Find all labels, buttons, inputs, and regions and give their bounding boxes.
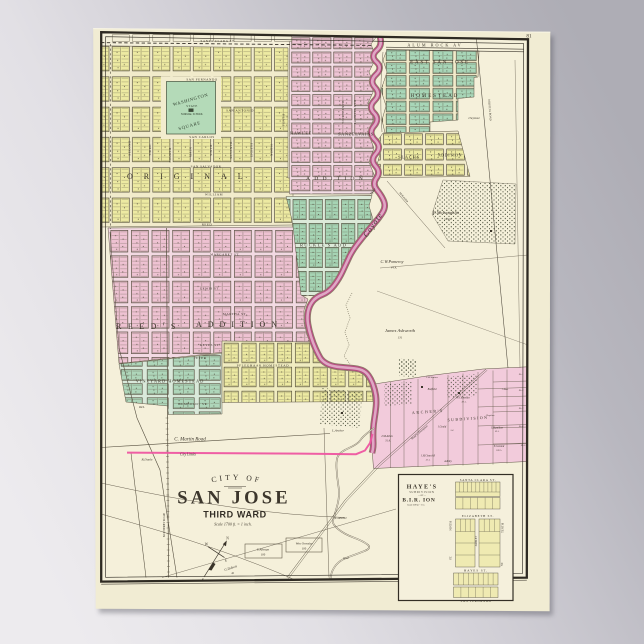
- svg-text:J.H.Churchill: J.H.Churchill: [421, 455, 435, 458]
- svg-text:F.Altman: F.Altman: [256, 548, 270, 552]
- svg-text:TENTH: TENTH: [282, 113, 286, 126]
- svg-text:L.Archer: L.Archer: [334, 516, 348, 520]
- svg-text:ELIZABETH ST.: ELIZABETH ST.: [462, 514, 494, 518]
- svg-text:109 A.: 109 A.: [496, 449, 502, 452]
- svg-text:E.McLaughlin: E.McLaughlin: [432, 210, 460, 215]
- svg-text:ADDITION: ADDITION: [438, 153, 462, 158]
- svg-text:RUCKLE'S ADD: RUCKLE'S ADD: [300, 243, 347, 248]
- svg-text:ST.: ST.: [500, 562, 504, 566]
- svg-text:No 4: No 4: [518, 425, 524, 428]
- svg-text:J.Seymour: J.Seymour: [468, 117, 481, 120]
- svg-text:WILLIAM: WILLIAM: [205, 193, 223, 197]
- svg-text:100: 100: [302, 547, 307, 551]
- svg-text:THIRD WARD: THIRD WARD: [203, 510, 267, 520]
- svg-text:ALUM ROCK AV: ALUM ROCK AV: [407, 43, 462, 48]
- svg-text:SANTA CLARA ST.: SANTA CLARA ST.: [200, 39, 235, 43]
- svg-text:HAYE'S: HAYE'S: [407, 484, 438, 491]
- svg-text:ADDITION: ADDITION: [306, 176, 367, 182]
- svg-text:39 A.: 39 A.: [461, 401, 466, 404]
- svg-text:R.Doyle: R.Doyle: [140, 458, 153, 462]
- svg-text:MARGARET ST.: MARGARET ST.: [210, 252, 240, 256]
- svg-text:No 1: No 1: [518, 373, 524, 376]
- svg-text:SAN ANTONIO: SAN ANTONIO: [226, 109, 254, 113]
- svg-text:LEWIS ST.: LEWIS ST.: [200, 287, 220, 291]
- svg-text:31 A.: 31 A.: [385, 440, 391, 443]
- svg-text:EIGHTH: EIGHTH: [249, 143, 253, 158]
- svg-text:Rich.: Rich.: [138, 406, 145, 409]
- svg-text:HOMESTEAD: HOMESTEAD: [411, 94, 460, 99]
- svg-text:SLACHS: SLACHS: [398, 155, 420, 160]
- svg-text:VINEYARD HOMESTEAD: VINEYARD HOMESTEAD: [136, 379, 205, 384]
- svg-text:SUBDIVISION: SUBDIVISION: [409, 491, 434, 494]
- svg-text:C.W.Pomeroy: C.W.Pomeroy: [381, 259, 404, 264]
- svg-text:MARTHA ST.: MARTHA ST.: [223, 312, 247, 316]
- svg-text:NINTH: NINTH: [449, 521, 453, 531]
- svg-text:REED: REED: [202, 223, 213, 227]
- svg-text:SECOND: SECOND: [128, 140, 132, 155]
- svg-text:A.Riley: A.Riley: [443, 460, 452, 463]
- svg-text:FOURTEENTH: FOURTEENTH: [353, 99, 357, 124]
- svg-text:W.Clemence: W.Clemence: [456, 397, 471, 400]
- svg-text:HUMBOLDT ST.: HUMBOLDT ST.: [178, 402, 208, 406]
- svg-text:SAN CARLOS: SAN CARLOS: [189, 135, 214, 139]
- svg-text:SAN JOSE: SAN JOSE: [177, 489, 291, 509]
- svg-text:SAN SALVADOR: SAN SALVADOR: [191, 165, 222, 169]
- svg-text:81: 81: [526, 34, 532, 40]
- svg-text:NINTH: NINTH: [270, 144, 274, 156]
- svg-text:J.Gould: J.Gould: [438, 426, 447, 429]
- svg-text:SIXTH: SIXTH: [209, 144, 213, 156]
- svg-text:ORIGINAL: ORIGINAL: [127, 172, 254, 181]
- svg-text:F.M.Watters: F.M.Watters: [425, 376, 438, 379]
- svg-text:S.Hamilton: S.Hamilton: [491, 427, 503, 430]
- svg-text:FOURTH: FOURTH: [168, 147, 172, 162]
- svg-text:NORMAL SCHOOL: NORMAL SCHOOL: [181, 113, 204, 116]
- svg-text:SEVENTH: SEVENTH: [229, 141, 233, 159]
- svg-text:PETER: PETER: [194, 356, 207, 360]
- svg-text:Wm Ormsby: Wm Ormsby: [296, 542, 313, 546]
- svg-text:MONTEREY ROAD: MONTEREY ROAD: [163, 513, 166, 537]
- svg-text:SAN FERNANDO: SAN FERNANDO: [186, 78, 217, 82]
- svg-text:Grant: Grant: [444, 217, 451, 221]
- svg-text:E.Gorand: E.Gorand: [493, 445, 505, 448]
- svg-text:100: 100: [261, 553, 266, 557]
- svg-text:W: W: [205, 543, 209, 547]
- svg-text:Scale 200 ft.=1 in.: Scale 200 ft.=1 in.: [407, 504, 425, 507]
- svg-text:ADDITION: ADDITION: [196, 320, 283, 329]
- svg-text:City Limits: City Limits: [180, 453, 196, 457]
- svg-text:A.Burt: A.Burt: [501, 388, 509, 391]
- svg-text:REED'S: REED'S: [116, 322, 182, 331]
- svg-text:STATE: STATE: [186, 104, 198, 108]
- svg-text:TENTH: TENTH: [501, 522, 505, 533]
- svg-text:10 A.: 10 A.: [495, 430, 500, 433]
- svg-text:N: N: [226, 537, 229, 541]
- svg-text:KEYES ST.: KEYES ST.: [200, 343, 220, 347]
- svg-text:ST.: ST.: [449, 556, 453, 560]
- svg-text:B.I.R. ION: B.I.R. ION: [402, 498, 435, 504]
- svg-text:AMSLEY: AMSLEY: [475, 536, 478, 547]
- svg-text:THIRTEENTH: THIRTEENTH: [341, 100, 345, 124]
- svg-text:J.M.Allen: J.M.Allen: [381, 434, 393, 438]
- svg-text:MAIN: MAIN: [189, 147, 193, 157]
- svg-text:PFLEGHAAR HOMESTEAD: PFLEGHAAR HOMESTEAD: [237, 364, 290, 368]
- svg-text:SANZELVAINS: SANZELVAINS: [338, 132, 374, 137]
- svg-text:SANTA CLARA ST.: SANTA CLARA ST.: [460, 478, 496, 482]
- svg-text:131: 131: [398, 336, 403, 340]
- svg-text:HAWLEE: HAWLEE: [290, 131, 312, 136]
- svg-text:EAST SAN JOSE: EAST SAN JOSE: [410, 61, 470, 66]
- svg-text:James Ashworth: James Ashworth: [385, 328, 416, 333]
- svg-text:L.Archer: L.Archer: [331, 429, 345, 433]
- svg-text:33 A.: 33 A.: [426, 458, 431, 461]
- svg-text:— OF —: — OF —: [417, 495, 427, 497]
- svg-text:HAYES ST.: HAYES ST.: [464, 569, 488, 573]
- svg-text:44 A.: 44 A.: [391, 266, 398, 270]
- svg-text:SAN FERNANDO: SAN FERNANDO: [460, 599, 491, 603]
- svg-text:THIRD: THIRD: [148, 144, 152, 156]
- svg-text:Bodfield: Bodfield: [428, 388, 437, 391]
- svg-text:Scale 1700 ft. = 1 inch.: Scale 1700 ft. = 1 inch.: [214, 522, 251, 527]
- svg-text:C. Martin Road: C. Martin Road: [174, 438, 206, 443]
